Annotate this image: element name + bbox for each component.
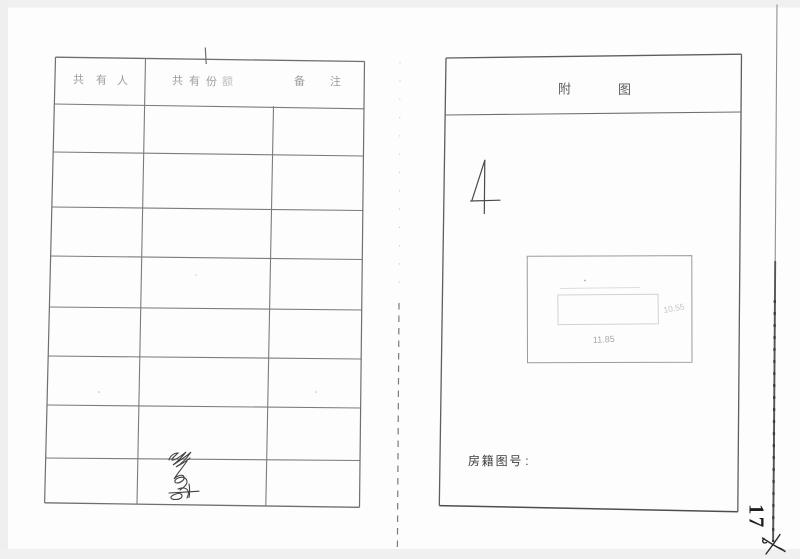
svg-text:11.85: 11.85 [593, 334, 615, 345]
svg-text:17: 17 [745, 504, 769, 529]
svg-text:房籍图号:: 房籍图号: [468, 453, 530, 468]
svg-text:共有人: 共有人 [73, 73, 128, 88]
